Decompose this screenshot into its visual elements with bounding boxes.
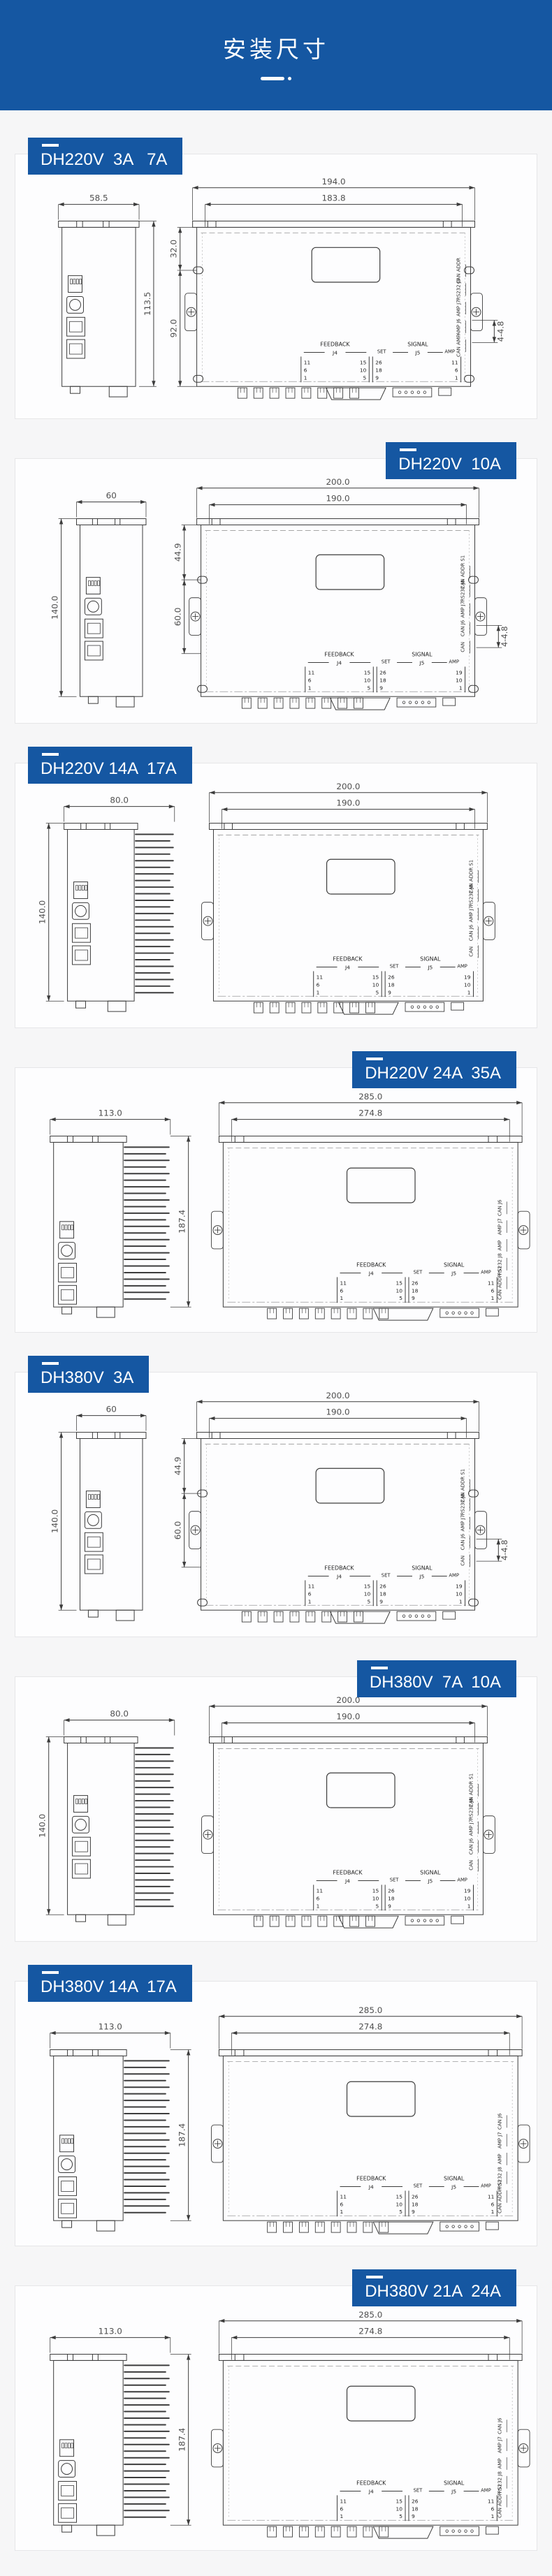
svg-text:11: 11 [317, 1887, 324, 1894]
section-label: DH380V 3A [28, 1356, 149, 1393]
svg-text:1: 1 [491, 2513, 495, 2519]
svg-text:10: 10 [372, 981, 379, 988]
label-dash-icon [42, 1362, 59, 1365]
svg-text:CAN: CAN [460, 1556, 466, 1566]
svg-text:9: 9 [412, 2513, 415, 2519]
svg-text:10: 10 [360, 367, 367, 373]
svg-text:FEEDBACK: FEEDBACK [324, 1565, 354, 1572]
svg-text:J5: J5 [451, 2183, 456, 2190]
pin-table: FEEDBACKJ4111561015SET26189SIGNALJ5AMP19… [314, 956, 474, 997]
svg-text:CAN J6: CAN J6 [497, 2114, 502, 2130]
section-label: DH380V 21A 24A [352, 2269, 516, 2306]
dimension-annotations: 60140.0200.0190.044.960.04-4.8 [50, 477, 510, 696]
svg-text:1: 1 [308, 685, 312, 691]
connector-labels: CAN J6AMP J7AMPRS232 J8CAN ADDR S1 [497, 1200, 507, 1300]
section-label-text: DH380V 3A [41, 1368, 133, 1388]
svg-text:6: 6 [491, 2201, 495, 2207]
svg-text:CAN J6: CAN J6 [497, 2418, 502, 2435]
svg-text:140.0: 140.0 [38, 900, 48, 924]
svg-text:15: 15 [372, 974, 379, 980]
svg-text:1: 1 [317, 989, 320, 995]
svg-text:5: 5 [399, 1295, 402, 1301]
dimension-annotations: 58.5113.5194.0183.832.092.04-4.8 [59, 177, 506, 386]
drawing-card: CAN ADDR S1RS232 J8AMP J7CAN J6CANFEEDBA… [15, 1676, 537, 1942]
label-dash-icon [42, 144, 59, 147]
svg-text:113.5: 113.5 [143, 292, 152, 316]
svg-text:AMP J7: AMP J7 [469, 906, 474, 923]
label-dash-icon [42, 753, 59, 756]
front-view: CAN J6AMP J7AMPRS232 J8CAN ADDR S1FEEDBA… [211, 1136, 530, 1320]
svg-text:AMP J7: AMP J7 [497, 2132, 502, 2149]
bottom-connectors [268, 2526, 499, 2538]
svg-text:SIGNAL: SIGNAL [420, 956, 441, 963]
svg-text:274.8: 274.8 [358, 2022, 382, 2032]
bottom-connectors [254, 1916, 463, 1928]
front-view: CAN ADDR S1RS232 J8AMP J7CAN J6CANFEEDBA… [189, 519, 487, 710]
svg-text:SIGNAL: SIGNAL [407, 342, 428, 348]
svg-text:9: 9 [379, 1598, 383, 1604]
pin-table: FEEDBACKJ4111561015SET26189SIGNALJ5AMP11… [337, 2480, 497, 2521]
section-dh220v-10a: DH220V 10A CAN ADDR S1RS232 J8AMP J7CAN … [15, 442, 537, 724]
svg-text:FEEDBACK: FEEDBACK [356, 1261, 386, 1268]
svg-text:RS232 J8: RS232 J8 [460, 1493, 466, 1515]
svg-text:1: 1 [304, 374, 307, 381]
svg-text:19: 19 [456, 1583, 463, 1589]
svg-text:1: 1 [467, 1903, 471, 1909]
svg-text:60.0: 60.0 [173, 1521, 183, 1540]
side-view [50, 2354, 169, 2535]
svg-text:113.0: 113.0 [99, 2327, 122, 2336]
svg-text:6: 6 [317, 981, 320, 988]
svg-text:18: 18 [379, 1590, 386, 1597]
svg-text:CAN J6: CAN J6 [460, 1534, 466, 1551]
svg-text:SIGNAL: SIGNAL [412, 652, 433, 658]
svg-text:9: 9 [375, 374, 379, 381]
svg-text:183.8: 183.8 [321, 193, 345, 203]
connector-labels: CAN ADDRRS232 J8AMP J7AMP J6CAN AMP [456, 258, 466, 357]
dimension-annotations: 80.0140.0200.0190.0 [38, 1695, 488, 1915]
connector-labels: CAN ADDR S1RS232 J8AMP J7CAN J6CAN [469, 1773, 479, 1872]
svg-text:AMP: AMP [481, 2183, 491, 2188]
svg-text:9: 9 [412, 2209, 415, 2215]
svg-text:CAN AMP: CAN AMP [456, 335, 462, 357]
svg-text:AMP: AMP [449, 1572, 459, 1578]
svg-text:AMP J6: AMP J6 [456, 319, 462, 335]
svg-text:32.0: 32.0 [169, 240, 179, 258]
svg-text:58.5: 58.5 [89, 193, 108, 203]
section-label: DH220V 14A 17A [28, 747, 192, 784]
side-view [77, 519, 146, 708]
technical-drawing: CAN ADDR S1RS232 J8AMP J7CAN J6CANFEEDBA… [15, 459, 537, 723]
technical-drawing: CAN J6AMP J7AMPRS232 J8CAN ADDR S1FEEDBA… [15, 1982, 537, 2246]
page: 安装尺寸 DH220V 3A 7A CAN ADDRRS232 J8AMP J7… [0, 0, 552, 2576]
section-dh380v-3a: DH380V 3A CAN ADDR S1RS232 J8AMP J7CAN J… [15, 1356, 537, 1637]
svg-text:140.0: 140.0 [38, 1814, 48, 1838]
svg-text:RS232 J8: RS232 J8 [460, 580, 466, 601]
svg-text:J5: J5 [451, 1270, 456, 1276]
svg-text:140.0: 140.0 [50, 1509, 60, 1533]
svg-text:274.8: 274.8 [358, 1108, 382, 1118]
svg-text:1: 1 [308, 1598, 312, 1604]
section-dh220v-24a-35a: DH220V 24A 35A CAN J6AMP J7AMPRS232 J8CA… [15, 1051, 537, 1333]
svg-text:15: 15 [372, 1887, 379, 1894]
label-row: DH380V 14A 17A [15, 1965, 537, 2002]
section-dh380v-21a-24a: DH380V 21A 24A CAN J6AMP J7AMPRS232 J8CA… [15, 2269, 537, 2551]
svg-text:9: 9 [388, 1903, 391, 1909]
svg-text:190.0: 190.0 [326, 494, 349, 504]
svg-text:11: 11 [340, 2498, 347, 2504]
technical-drawing: CAN ADDR S1RS232 J8AMP J7CAN J6CANFEEDBA… [15, 1677, 537, 1941]
svg-text:AMP: AMP [481, 1269, 491, 1275]
svg-text:285.0: 285.0 [358, 2310, 382, 2320]
svg-text:11: 11 [340, 2193, 347, 2200]
svg-text:CAN J6: CAN J6 [469, 1838, 474, 1855]
svg-text:60: 60 [106, 1405, 117, 1414]
svg-text:9: 9 [388, 989, 391, 995]
pin-table: FEEDBACKJ4111561015SET26189SIGNALJ5AMP11… [337, 1261, 497, 1303]
section-label: DH220V 10A [386, 442, 516, 479]
svg-text:4-4.8: 4-4.8 [500, 1539, 509, 1560]
svg-text:J4: J4 [368, 2488, 374, 2494]
front-view: CAN J6AMP J7AMPRS232 J8CAN ADDR S1FEEDBA… [211, 2354, 530, 2538]
section-dh220v-3a-7a: DH220V 3A 7A CAN ADDRRS232 J8AMP J7AMP J… [15, 138, 537, 419]
svg-text:11: 11 [488, 2498, 495, 2504]
connector-labels: CAN ADDR S1RS232 J8AMP J7CAN J6CAN [460, 555, 470, 654]
drawing-card: CAN J6AMP J7AMPRS232 J8CAN ADDR S1FEEDBA… [15, 1981, 537, 2246]
section-label-text: DH220V 3A 7A [41, 150, 167, 170]
hole-note: 4-4.8 [472, 321, 506, 343]
svg-text:44.9: 44.9 [173, 543, 183, 562]
svg-text:187.4: 187.4 [177, 2123, 187, 2147]
svg-text:SIGNAL: SIGNAL [412, 1565, 433, 1572]
svg-text:113.0: 113.0 [99, 2022, 122, 2032]
svg-text:10: 10 [464, 1895, 471, 1901]
svg-text:AMP: AMP [449, 659, 459, 664]
side-view [77, 1433, 146, 1621]
svg-text:6: 6 [491, 2505, 495, 2512]
section-label: DH220V 24A 35A [352, 1051, 516, 1088]
svg-text:187.4: 187.4 [177, 2428, 187, 2452]
svg-text:CAN: CAN [460, 642, 466, 652]
hole-note: 4-4.8 [476, 625, 509, 647]
svg-text:1: 1 [340, 2513, 344, 2519]
svg-text:4-4.8: 4-4.8 [500, 626, 509, 647]
svg-text:CAN J6: CAN J6 [469, 925, 474, 942]
svg-text:FEEDBACK: FEEDBACK [333, 1870, 363, 1876]
svg-text:26: 26 [379, 1583, 386, 1589]
svg-text:60: 60 [106, 491, 117, 501]
svg-text:10: 10 [464, 981, 471, 988]
technical-drawing: CAN J6AMP J7AMPRS232 J8CAN ADDR S1FEEDBA… [15, 1068, 537, 1332]
svg-text:26: 26 [412, 2498, 419, 2504]
svg-text:19: 19 [464, 1887, 471, 1894]
svg-text:11: 11 [308, 669, 315, 675]
svg-text:80.0: 80.0 [110, 1709, 129, 1719]
svg-text:CAN ADDR S1: CAN ADDR S1 [497, 1266, 502, 1300]
svg-text:15: 15 [396, 2193, 403, 2200]
pin-table: FEEDBACKJ4111561015SET26189SIGNALJ5AMP19… [305, 652, 465, 693]
drawing-card: CAN J6AMP J7AMPRS232 J8CAN ADDR S1FEEDBA… [15, 1067, 537, 1333]
svg-text:18: 18 [379, 677, 386, 683]
svg-text:190.0: 190.0 [336, 1712, 360, 1722]
svg-text:1: 1 [317, 1903, 320, 1909]
svg-text:J5: J5 [427, 964, 433, 970]
svg-text:J5: J5 [451, 2488, 456, 2494]
svg-text:9: 9 [412, 1295, 415, 1301]
svg-text:CAN ADDR S1: CAN ADDR S1 [497, 2484, 502, 2518]
label-dash-icon [366, 1058, 383, 1060]
svg-text:J4: J4 [336, 1573, 342, 1579]
svg-text:AMP J7: AMP J7 [456, 300, 462, 316]
pin-table: FEEDBACKJ4111561015SET26189SIGNALJ5AMP11… [337, 2175, 497, 2216]
underline-bar-icon [261, 77, 284, 80]
front-view: CAN ADDR S1RS232 J8AMP J7CAN J6CANFEEDBA… [189, 1433, 487, 1624]
svg-text:AMP J7: AMP J7 [469, 1820, 474, 1836]
svg-text:SET: SET [414, 1269, 423, 1275]
hole-note: 4-4.8 [476, 1539, 509, 1561]
svg-text:4-4.8: 4-4.8 [495, 321, 505, 342]
svg-text:J4: J4 [344, 964, 350, 970]
connector-labels: CAN ADDR S1RS232 J8AMP J7CAN J6CAN [460, 1469, 470, 1567]
svg-text:SIGNAL: SIGNAL [420, 1870, 441, 1876]
svg-text:AMP J7: AMP J7 [497, 2436, 502, 2453]
svg-text:RS232 J8: RS232 J8 [469, 884, 474, 906]
svg-text:10: 10 [396, 1287, 403, 1294]
svg-text:18: 18 [412, 2505, 419, 2512]
svg-text:FEEDBACK: FEEDBACK [333, 956, 363, 963]
svg-text:1: 1 [340, 1295, 344, 1301]
label-row: DH380V 7A 10A [15, 1660, 537, 1697]
svg-text:15: 15 [360, 359, 367, 365]
section-label-text: DH380V 21A 24A [365, 2282, 501, 2301]
svg-text:1: 1 [459, 1598, 463, 1604]
svg-text:92.0: 92.0 [169, 319, 179, 338]
svg-text:140.0: 140.0 [50, 596, 60, 620]
section-label-text: DH220V 10A [398, 455, 501, 474]
svg-text:26: 26 [375, 359, 382, 365]
connector-labels: CAN ADDR S1RS232 J8AMP J7CAN J6CAN [469, 860, 479, 958]
technical-drawing: CAN ADDRRS232 J8AMP J7AMP J6CAN AMPFEEDB… [15, 154, 537, 418]
side-view [50, 1136, 169, 1317]
svg-text:SIGNAL: SIGNAL [444, 2175, 465, 2181]
drawing-card: CAN ADDR S1RS232 J8AMP J7CAN J6CANFEEDBA… [15, 1372, 537, 1637]
svg-text:AMP: AMP [497, 1240, 502, 1250]
svg-text:6: 6 [491, 1287, 495, 1294]
svg-text:RS232 J8: RS232 J8 [469, 1798, 474, 1820]
svg-text:AMP: AMP [481, 2487, 491, 2493]
technical-drawing: CAN ADDR S1RS232 J8AMP J7CAN J6CANFEEDBA… [15, 763, 537, 1027]
svg-text:190.0: 190.0 [326, 1407, 349, 1417]
bottom-connectors [242, 698, 455, 710]
svg-text:274.8: 274.8 [358, 2327, 382, 2336]
svg-text:J4: J4 [368, 2183, 374, 2190]
svg-text:1: 1 [467, 989, 471, 995]
front-view: CAN J6AMP J7AMPRS232 J8CAN ADDR S1FEEDBA… [211, 2049, 530, 2234]
svg-text:CAN J6: CAN J6 [460, 620, 466, 637]
svg-text:10: 10 [364, 677, 371, 683]
svg-text:CAN: CAN [469, 1860, 474, 1871]
svg-text:1: 1 [459, 685, 463, 691]
svg-text:9: 9 [379, 685, 383, 691]
svg-text:19: 19 [464, 974, 471, 980]
svg-text:285.0: 285.0 [358, 2005, 382, 2015]
svg-text:18: 18 [388, 981, 395, 988]
drawing-card: CAN ADDRRS232 J8AMP J7AMP J6CAN AMPFEEDB… [15, 154, 537, 419]
svg-text:SET: SET [377, 349, 387, 354]
label-row: DH380V 3A [15, 1356, 537, 1393]
svg-text:6: 6 [455, 367, 458, 373]
bottom-connectors [254, 1002, 463, 1014]
bottom-connectors [238, 388, 451, 400]
svg-text:SET: SET [414, 2487, 423, 2493]
svg-text:10: 10 [456, 677, 463, 683]
svg-text:1: 1 [455, 374, 458, 381]
svg-text:FEEDBACK: FEEDBACK [320, 342, 350, 348]
svg-text:SET: SET [382, 659, 391, 664]
svg-text:AMP: AMP [444, 349, 455, 354]
section-label-text: DH220V 14A 17A [41, 759, 177, 779]
svg-text:J4: J4 [336, 659, 342, 666]
svg-text:113.0: 113.0 [99, 1108, 122, 1118]
side-view [50, 2049, 169, 2231]
svg-text:26: 26 [388, 974, 395, 980]
svg-text:194.0: 194.0 [321, 177, 345, 186]
svg-text:10: 10 [456, 1590, 463, 1597]
section-dh220v-14a-17a: DH220V 14A 17A CAN ADDR S1RS232 J8AMP J7… [15, 747, 537, 1028]
label-row: DH220V 24A 35A [15, 1051, 537, 1088]
label-row: DH220V 14A 17A [15, 747, 537, 784]
section-label: DH380V 14A 17A [28, 1965, 192, 2002]
svg-text:6: 6 [308, 677, 312, 683]
dimension-annotations: 60140.0200.0190.044.960.04-4.8 [50, 1391, 510, 1610]
svg-text:CAN ADDR S1: CAN ADDR S1 [497, 2180, 502, 2213]
svg-text:10: 10 [396, 2505, 403, 2512]
svg-text:10: 10 [372, 1895, 379, 1901]
label-dash-icon [371, 1667, 388, 1669]
svg-text:11: 11 [317, 974, 324, 980]
drawing-card: CAN ADDR S1RS232 J8AMP J7CAN J6CANFEEDBA… [15, 458, 537, 724]
svg-text:5: 5 [399, 2209, 402, 2215]
svg-text:187.4: 187.4 [177, 1210, 187, 1234]
svg-text:26: 26 [379, 669, 386, 675]
svg-text:26: 26 [388, 1887, 395, 1894]
technical-drawing: CAN J6AMP J7AMPRS232 J8CAN ADDR S1FEEDBA… [15, 2286, 537, 2550]
label-dash-icon [366, 2276, 383, 2278]
svg-text:11: 11 [340, 1280, 347, 1286]
section-label: DH220V 3A 7A [28, 138, 182, 175]
svg-text:SIGNAL: SIGNAL [444, 1261, 465, 1268]
svg-text:1: 1 [491, 2209, 495, 2215]
page-title: 安装尺寸 [223, 31, 329, 64]
svg-text:SET: SET [382, 1572, 391, 1578]
svg-text:5: 5 [363, 374, 367, 381]
connector-labels: CAN J6AMP J7AMPRS232 J8CAN ADDR S1 [497, 2114, 507, 2213]
title-underline [261, 77, 291, 80]
svg-text:11: 11 [488, 2193, 495, 2200]
front-view: CAN ADDRRS232 J8AMP J7AMP J6CAN AMPFEEDB… [185, 221, 483, 400]
svg-text:SET: SET [390, 963, 400, 969]
svg-text:J4: J4 [368, 1270, 374, 1276]
page-header: 安装尺寸 [0, 0, 552, 110]
bottom-connectors [268, 2222, 499, 2234]
svg-text:6: 6 [317, 1895, 320, 1901]
svg-text:26: 26 [412, 1280, 419, 1286]
section-label-text: DH380V 7A 10A [370, 1673, 501, 1692]
svg-text:6: 6 [340, 2505, 344, 2512]
side-view [64, 824, 173, 1012]
svg-text:AMP: AMP [497, 2458, 502, 2468]
svg-text:11: 11 [304, 359, 311, 365]
svg-text:18: 18 [412, 1287, 419, 1294]
svg-text:J4: J4 [332, 349, 337, 356]
svg-text:RS232 J8: RS232 J8 [456, 279, 462, 300]
svg-text:6: 6 [304, 367, 307, 373]
svg-text:CAN: CAN [469, 946, 474, 957]
front-view: CAN ADDR S1RS232 J8AMP J7CAN J6CANFEEDBA… [202, 1737, 495, 1929]
svg-text:AMP: AMP [457, 1877, 467, 1882]
svg-text:AMP J7: AMP J7 [497, 1218, 502, 1235]
pin-table: FEEDBACKJ4111561015SET26189SIGNALJ5AMP19… [305, 1565, 465, 1607]
side-view [59, 221, 139, 397]
svg-text:11: 11 [451, 359, 458, 365]
svg-text:AMP J7: AMP J7 [460, 601, 466, 618]
label-dash-icon [400, 448, 416, 451]
svg-text:18: 18 [388, 1895, 395, 1901]
underline-dot-icon [288, 77, 291, 80]
svg-text:6: 6 [308, 1590, 312, 1597]
label-row: DH220V 10A [15, 442, 537, 479]
section-label-text: DH220V 24A 35A [365, 1064, 501, 1083]
content: DH220V 3A 7A CAN ADDRRS232 J8AMP J7AMP J… [0, 138, 552, 2572]
technical-drawing: CAN ADDR S1RS232 J8AMP J7CAN J6CANFEEDBA… [15, 1373, 537, 1637]
label-row: DH380V 21A 24A [15, 2269, 537, 2306]
svg-text:5: 5 [375, 1903, 379, 1909]
svg-text:6: 6 [340, 2201, 344, 2207]
svg-text:5: 5 [375, 989, 379, 995]
svg-text:60.0: 60.0 [173, 608, 183, 627]
svg-text:1: 1 [491, 1295, 495, 1301]
svg-text:26: 26 [412, 2193, 419, 2200]
svg-text:5: 5 [368, 685, 371, 691]
pin-table: FEEDBACKJ4111561015SET26189SIGNALJ5AMP19… [314, 1870, 474, 1911]
svg-text:19: 19 [456, 669, 463, 675]
svg-text:5: 5 [399, 2513, 402, 2519]
svg-text:190.0: 190.0 [336, 798, 360, 808]
svg-text:6: 6 [340, 1287, 344, 1294]
svg-text:J5: J5 [419, 659, 424, 666]
svg-text:FEEDBACK: FEEDBACK [324, 652, 354, 658]
bottom-connectors [268, 1308, 499, 1320]
drawing-card: CAN ADDR S1RS232 J8AMP J7CAN J6CANFEEDBA… [15, 763, 537, 1028]
svg-text:5: 5 [368, 1598, 371, 1604]
svg-text:15: 15 [396, 2498, 403, 2504]
svg-text:AMP: AMP [457, 963, 467, 969]
svg-text:J4: J4 [344, 1878, 350, 1884]
svg-text:SET: SET [390, 1877, 400, 1882]
section-label: DH380V 7A 10A [357, 1660, 516, 1697]
svg-text:J5: J5 [427, 1878, 433, 1884]
svg-text:AMP J7: AMP J7 [460, 1515, 466, 1532]
bottom-connectors [242, 1611, 455, 1623]
svg-text:44.9: 44.9 [173, 1457, 183, 1476]
dimension-annotations: 80.0140.0200.0190.0 [38, 782, 488, 1001]
svg-text:18: 18 [375, 367, 382, 373]
svg-text:11: 11 [308, 1583, 315, 1589]
svg-text:285.0: 285.0 [358, 1092, 382, 1102]
pin-table: FEEDBACKJ4111561015SET26189SIGNALJ5AMP11… [301, 342, 461, 383]
svg-text:10: 10 [364, 1590, 371, 1597]
svg-text:J5: J5 [419, 1573, 424, 1579]
